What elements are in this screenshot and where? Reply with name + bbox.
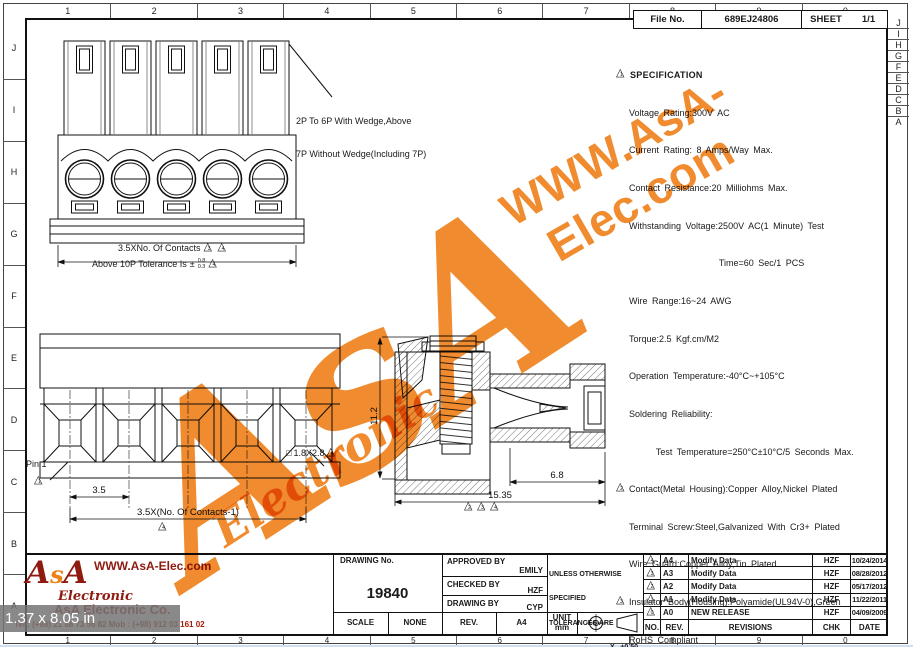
spec-title: SPECIFICATION xyxy=(630,69,703,82)
rev-marker-icon: △0 xyxy=(643,607,660,620)
ruler-zone-label: B xyxy=(3,512,25,574)
ruler-zone-label: G xyxy=(3,203,25,265)
rev-marker-icon: △2 xyxy=(643,580,660,593)
rev-header-revisions: REVISIONS xyxy=(688,620,812,636)
grid-line xyxy=(442,576,547,577)
ruler-zone-label: E xyxy=(3,327,25,389)
total-dim-text: 3.5X(No. Of Contacts-1) xyxy=(137,507,239,518)
ruler-zone-label: 7 xyxy=(542,3,628,18)
spec-line: Wire Range:16~24 AWG xyxy=(616,295,888,308)
scale-label: SCALE xyxy=(333,618,388,627)
third-angle-projection-icon xyxy=(581,612,641,634)
tolerance-note-line: SPECIFIED xyxy=(549,595,641,603)
rev-header-rev: REV. xyxy=(660,620,688,636)
wedge-callout: 2P To 6P With Wedge,Above 7P Without Wed… xyxy=(296,94,426,182)
rev-date: 11/22/2011 xyxy=(850,594,888,607)
rev-marker-icon: △1 xyxy=(643,594,660,607)
ruler-zone-label: E xyxy=(888,72,909,83)
drawing-no-label: DRAWING No. xyxy=(340,556,394,565)
rev-date: 08/28/2012 xyxy=(850,567,888,580)
note-triangle-icon: △3 xyxy=(477,502,488,513)
note-triangle-icon: △1 xyxy=(616,69,627,80)
ruler-zone-label: 2 xyxy=(110,636,196,645)
ruler-zone-label: G xyxy=(888,50,909,61)
note-triangle-icon: △2 xyxy=(464,502,475,513)
tolerance-text: Above 10P Tolerance Is xyxy=(92,259,187,270)
rev-desc: NEW RELEASE xyxy=(688,607,812,620)
ruler-zone-label: H xyxy=(888,39,909,50)
pitch-dim-text: 3.5 xyxy=(92,485,105,496)
ruler-left: J I H G F E D C B A xyxy=(3,18,25,636)
rev-header-chk: CHK xyxy=(812,620,850,636)
rev-desc: Modify Data xyxy=(688,580,812,593)
checked-by-value: HZF xyxy=(443,586,543,595)
section-note-triangles: △2 △3 △4 xyxy=(464,502,501,513)
note-triangle-icon: △4 xyxy=(158,518,169,536)
rev-marker-icon: △3 xyxy=(643,567,660,580)
rev-desc: Modify Data xyxy=(688,594,812,607)
spec-line: △2 Contact(Metal Housing):Copper Alloy,N… xyxy=(616,483,888,496)
tolerance-values: 0.8 0.3 xyxy=(198,259,206,270)
ruler-zone-label: 6 xyxy=(456,3,542,18)
pin-view-drawing: 3.5 3.5X(No. Of Contacts-1) xyxy=(38,330,348,530)
drawing-by-value: CYP xyxy=(443,603,543,612)
note-triangle-icon: △1 xyxy=(34,472,45,490)
company-logo: AsA xyxy=(26,558,88,590)
rev-date: 04/09/2009 xyxy=(850,607,888,620)
ruler-zone-label: D xyxy=(3,388,25,450)
rev-id: A0 xyxy=(660,607,688,620)
unit-value: mm xyxy=(547,623,577,632)
rev-marker-icon: △4 xyxy=(643,554,660,567)
callout-line-1: 2P To 6P With Wedge,Above xyxy=(296,116,426,127)
ruler-right: J I H G F E D C B A xyxy=(888,18,909,127)
note-triangle-icon: △4 xyxy=(326,448,337,459)
front-view-drawing xyxy=(40,35,340,275)
depth-dim-text: 6.8 xyxy=(550,470,563,481)
spec-line: Terminal Screw:Steel,Galvanized With Cr3… xyxy=(616,521,888,534)
section-view-drawing: 11.2 6.8 15.35 xyxy=(370,328,615,528)
ruler-zone-label: I xyxy=(888,28,909,39)
ruler-zone-label: 4 xyxy=(283,636,369,645)
spec-line: Torque:2.5 Kgf.cm/M2 xyxy=(616,333,888,346)
ruler-zone-label: 6 xyxy=(456,636,542,645)
spec-line: Time=60 Sec/1 PCS xyxy=(616,257,888,270)
rev-id: A4 xyxy=(660,554,688,567)
note-triangle-icon: △4 xyxy=(490,502,501,513)
sheet-label: SHEET xyxy=(802,11,850,28)
note-triangle-icon: △2 xyxy=(616,483,627,494)
slot-dim-text: 1.8X2.8 xyxy=(293,448,324,459)
ruler-zone-label: 3 xyxy=(197,636,283,645)
rev-chk: HZF xyxy=(812,594,850,607)
ruler-zone-label: 5 xyxy=(370,3,456,18)
tolerance-note: Above 10P Tolerance Is ± 0.8 0.3 △4 xyxy=(92,259,219,270)
spec-line: Current Rating: 8 Amps/Way Max. xyxy=(616,144,888,157)
pin1-label: Pin 1 xyxy=(26,459,47,470)
ruler-zone-label: J xyxy=(3,18,25,79)
dim-text: 3.5XNo. Of Contacts xyxy=(118,243,201,254)
ruler-zone-label: 2 xyxy=(110,3,196,18)
rev-label: REV. xyxy=(442,618,496,627)
contacts-dimension-label: 3.5XNo. Of Contacts △3 △4 xyxy=(118,243,229,254)
unit-label: UNIT xyxy=(547,613,577,622)
ruler-zone-label: C xyxy=(3,450,25,512)
ruler-zone-label: 4 xyxy=(283,3,369,18)
spec-line: Operation Temperature:-40°C~+105°C xyxy=(616,370,888,383)
rev-chk: HZF xyxy=(812,607,850,620)
drawing-no-value: 19840 xyxy=(333,585,442,602)
ruler-zone-label: 1 xyxy=(25,3,110,18)
file-number-box: File No. 689EJ24806 SHEET 1/1 xyxy=(633,10,888,29)
logo-s-accent: s xyxy=(50,560,64,589)
rev-value: A4 xyxy=(496,618,547,627)
square-symbol-icon: □ xyxy=(286,448,291,459)
spec-line: Voltage Rating:300V AC xyxy=(616,107,888,120)
image-size-tooltip: 1.37 x 8.05 in xyxy=(0,605,180,632)
rev-date: 05/17/2012 xyxy=(850,580,888,593)
company-url: WWW.AsA-Elec.com xyxy=(94,559,211,573)
ruler-zone-label: I xyxy=(3,79,25,141)
rev-date: 10/24/2014 xyxy=(850,554,888,567)
ruler-zone-label: D xyxy=(888,83,909,94)
rev-desc: Modify Data xyxy=(688,554,812,567)
slot-dimension-label: □ 1.8X2.8 △4 xyxy=(286,448,337,459)
ruler-zone-label: 1 xyxy=(25,636,110,645)
note-triangle-icon: △4 xyxy=(208,259,219,270)
approved-by-value: EMILY xyxy=(443,566,543,575)
ruler-zone-label: 5 xyxy=(370,636,456,645)
plus-minus-sign: ± xyxy=(190,259,195,270)
note-triangle-icon: △4 xyxy=(218,243,229,254)
spec-line: Withstanding Voltage:2500V AC(1 Minute) … xyxy=(616,220,888,233)
callout-line-2: 7P Without Wedge(Including 7P) xyxy=(296,149,426,160)
rev-header-date: DATE xyxy=(850,620,888,636)
approved-by-label: APPROVED BY xyxy=(447,557,505,566)
tolerance-note-line: UNLESS OTHERWISE xyxy=(549,571,641,579)
ruler-zone-label: F xyxy=(3,265,25,327)
ruler-zone-label: 3 xyxy=(197,3,283,18)
revision-table: △4 A4 Modify Data HZF 10/24/2014 △3 A3 M… xyxy=(643,554,888,636)
ruler-zone-label: C xyxy=(888,94,909,105)
spec-line: Test Temperature=250°C±10°C/5 Seconds Ma… xyxy=(616,446,888,459)
rev-chk: HZF xyxy=(812,567,850,580)
spec-line: Soldering Reliability: xyxy=(616,408,888,421)
ruler-zone-label: A xyxy=(888,116,909,127)
rev-chk: HZF xyxy=(812,554,850,567)
rev-header-no: NO. xyxy=(643,620,660,636)
rev-id: A3 xyxy=(660,567,688,580)
spec-line: Contact Resistance:20 Milliohms Max. xyxy=(616,182,888,195)
ruler-zone-label: J xyxy=(888,18,909,28)
ruler-zone-label: B xyxy=(888,105,909,116)
height-dim-text: 11.2 xyxy=(370,407,380,425)
sheet-value: 1/1 xyxy=(850,11,887,28)
file-no-label: File No. xyxy=(634,11,702,28)
scale-value: NONE xyxy=(388,618,442,627)
ruler-zone-label: F xyxy=(888,61,909,72)
drawing-sheet: 1 2 3 4 5 6 7 8 9 0 1 2 3 4 5 6 7 8 9 0 … xyxy=(0,0,913,647)
file-no-value: 689EJ24806 xyxy=(702,11,802,28)
rev-id: A1 xyxy=(660,594,688,607)
grid-line xyxy=(442,595,547,596)
ruler-zone-label: H xyxy=(3,141,25,203)
rev-id: A2 xyxy=(660,580,688,593)
rev-chk: HZF xyxy=(812,580,850,593)
note-triangle-icon: △3 xyxy=(204,243,215,254)
rev-desc: Modify Data xyxy=(688,567,812,580)
